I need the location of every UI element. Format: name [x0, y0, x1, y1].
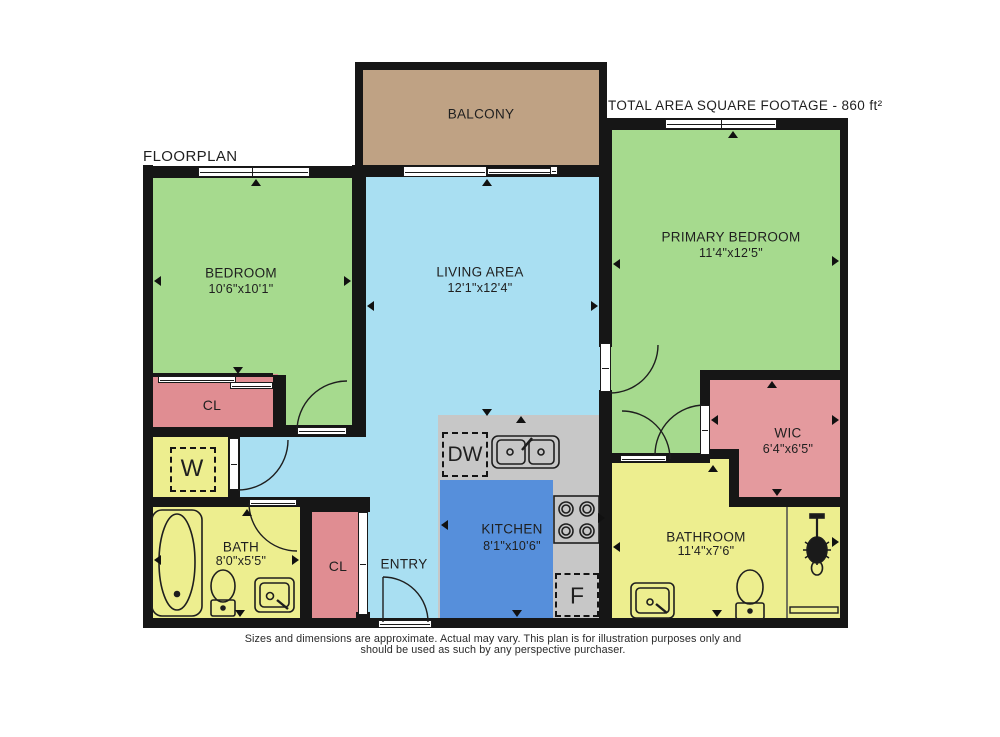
- arrow: [728, 131, 738, 138]
- primary-bedroom-label: PRIMARY BEDROOM: [661, 230, 800, 245]
- arrow: [235, 610, 245, 617]
- bathroom-fixtures: [631, 507, 838, 619]
- arrow: [441, 520, 448, 530]
- bath-sink-inner: [260, 583, 289, 607]
- stove-burner-1: [559, 502, 573, 516]
- stove-burner-4-inner: [583, 527, 591, 535]
- arrow: [832, 415, 839, 425]
- arrow: [292, 555, 299, 565]
- arrow: [711, 415, 718, 425]
- arrow: [154, 555, 161, 565]
- refrigerator-label: F: [570, 583, 584, 610]
- stove-burner-2: [580, 502, 594, 516]
- wic-door-arc: [655, 405, 705, 455]
- floorplan-canvas: FLOORPLAN TOTAL AREA SQUARE FOOTAGE - 86…: [0, 0, 1000, 737]
- bedroom-dims: 10'6"x10'1": [209, 282, 274, 296]
- kitchen-dims: 8'1"x10'6": [483, 539, 541, 553]
- showerhead-arm: [810, 514, 824, 518]
- bedroom-door-arc: [297, 381, 347, 431]
- bath-toilet-dot: [221, 606, 225, 610]
- arrow: [767, 381, 777, 388]
- kitchen-sink-drain-left: [507, 449, 513, 455]
- page-title: FLOORPLAN: [143, 148, 237, 165]
- bath-sink-drain: [267, 593, 274, 600]
- total-area-label: TOTAL AREA SQUARE FOOTAGE - 860 ft²: [608, 98, 883, 113]
- stove-burner-1-inner: [562, 505, 570, 513]
- arrow: [772, 489, 782, 496]
- dishwasher-label: DW: [448, 443, 483, 467]
- arrow: [591, 301, 598, 311]
- kitchen-sink-left-basin: [497, 440, 525, 464]
- stove-burner-3: [559, 524, 573, 538]
- primary-bedroom-dims: 11'4"x12'5": [699, 246, 763, 260]
- arrow: [367, 301, 374, 311]
- bathroom-sink-faucet: [656, 604, 667, 613]
- arrow: [154, 276, 161, 286]
- arrow: [598, 513, 605, 523]
- shower-threshold: [790, 607, 838, 613]
- kitchen-sink-right-basin: [529, 440, 554, 464]
- arrow: [344, 276, 351, 286]
- living-area-label: LIVING AREA: [436, 265, 523, 280]
- primary-suite-door-arc: [610, 345, 658, 393]
- laundry-door-arc: [238, 440, 288, 490]
- bathroom-door-arc: [622, 411, 670, 459]
- arrow: [482, 179, 492, 186]
- washer-label: W: [181, 455, 204, 483]
- entry-closet-label: CL: [329, 558, 348, 574]
- bath-toilet-bowl: [211, 570, 235, 602]
- stove-burner-3-inner: [562, 527, 570, 535]
- balcony-label: BALCONY: [448, 107, 515, 122]
- kitchen-sink-drain-right: [538, 449, 544, 455]
- bathroom-toilet-bowl: [737, 570, 763, 604]
- arrow: [251, 179, 261, 186]
- bath-label: BATH: [223, 540, 259, 555]
- arrow: [516, 416, 526, 423]
- arrow: [512, 610, 522, 617]
- arrow: [712, 610, 722, 617]
- arrow: [832, 256, 839, 266]
- bathtub-drain: [175, 592, 180, 597]
- kitchen-faucet: [522, 438, 532, 450]
- living-area-dims: 12'1"x12'4": [448, 281, 513, 295]
- arrow: [613, 259, 620, 269]
- bathroom-sink-drain: [647, 599, 653, 605]
- wic-label: WIC: [774, 426, 801, 441]
- entry-door-arc: [383, 577, 428, 622]
- entry-label: ENTRY: [380, 557, 427, 572]
- arrow: [708, 465, 718, 472]
- door-swing-arcs: [238, 345, 705, 622]
- kitchen-label: KITCHEN: [481, 522, 542, 537]
- wic-dims: 6'4"x6'5": [763, 442, 813, 456]
- arrow: [613, 542, 620, 552]
- bathroom-dims: 11'4"x7'6": [678, 544, 735, 558]
- bathroom-label: BATHROOM: [666, 530, 745, 545]
- bedroom-label: BEDROOM: [205, 266, 277, 281]
- bathroom-toilet-dot: [748, 609, 752, 613]
- arrow: [832, 537, 839, 547]
- bedroom-closet-label: CL: [203, 397, 222, 413]
- disclaimer-line2: should be used as such by any perspectiv…: [360, 644, 625, 656]
- bath-dims: 8'0"x5'5": [216, 554, 266, 568]
- arrow: [233, 367, 243, 374]
- arrow: [482, 409, 492, 416]
- stove-burner-4: [580, 524, 594, 538]
- stove-burner-2-inner: [583, 505, 591, 513]
